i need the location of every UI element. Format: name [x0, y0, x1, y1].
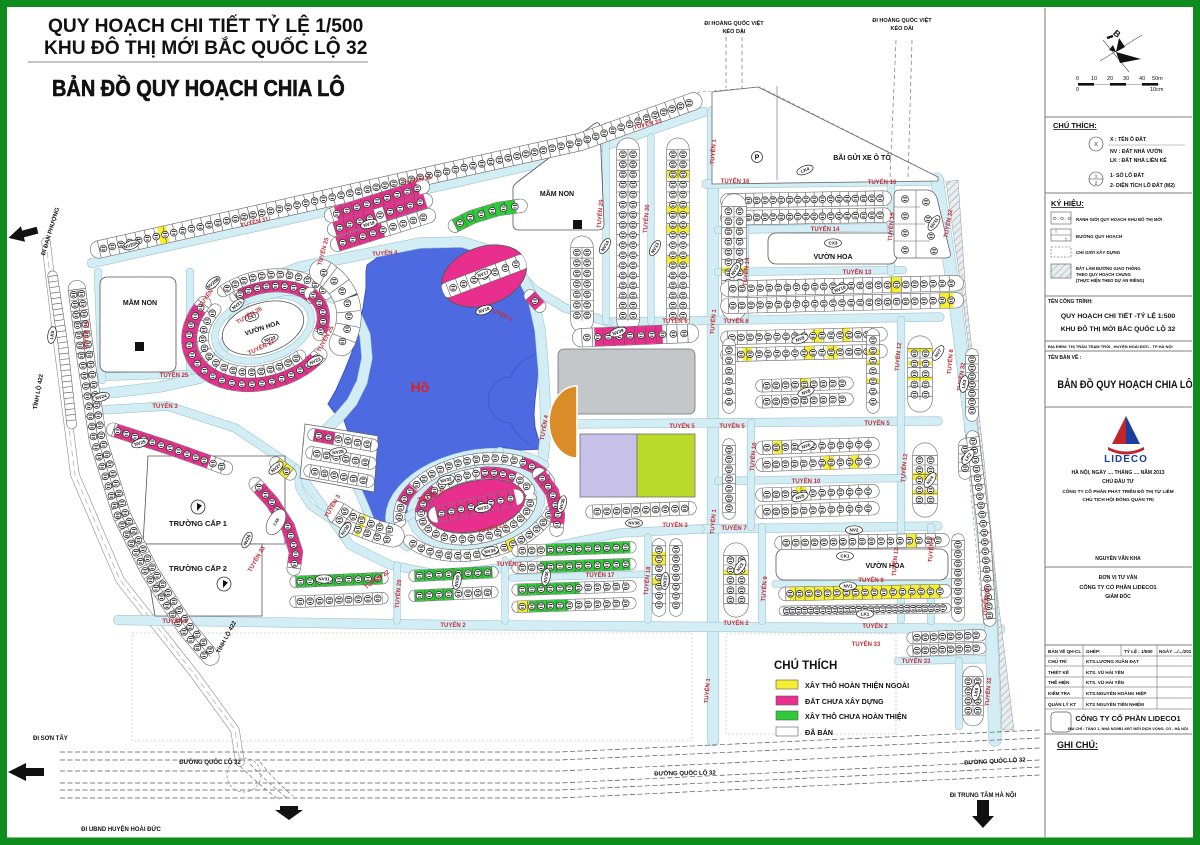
svg-text:TUYẾN 2: TUYẾN 2 — [862, 623, 888, 630]
svg-text:TUYẾN 3: TUYẾN 3 — [662, 522, 688, 529]
svg-text:CHỦ TỊCH HỘI ĐỒNG QUẢN TRỊ: CHỦ TỊCH HỘI ĐỒNG QUẢN TRỊ — [1082, 495, 1153, 502]
svg-text:CÔNG TY CỔ PHẦN LIDECO1: CÔNG TY CỔ PHẦN LIDECO1 — [1079, 583, 1156, 591]
svg-text:P: P — [755, 155, 760, 162]
svg-text:NGUYỄN VĂN KHA: NGUYỄN VĂN KHA — [1095, 555, 1141, 562]
svg-text:CHÚ THÍCH:: CHÚ THÍCH: — [1053, 121, 1097, 130]
svg-text:KÉO DÀI: KÉO DÀI — [891, 24, 914, 32]
svg-text:ĐẤT CHƯA XÂY DỰNG: ĐẤT CHƯA XÂY DỰNG — [805, 696, 884, 706]
svg-text:50m: 50m — [1152, 76, 1163, 82]
svg-text:QUẢN LÝ KT: QUẢN LÝ KT — [1048, 701, 1076, 707]
svg-text:TÊN CÔNG TRÌNH:: TÊN CÔNG TRÌNH: — [1048, 297, 1093, 305]
svg-text:30: 30 — [1123, 76, 1129, 82]
svg-text:CK1: CK1 — [840, 554, 850, 559]
svg-text:TUYẾN 2: TUYẾN 2 — [723, 620, 749, 627]
svg-text:TUYẾN 33: TUYẾN 33 — [852, 641, 881, 648]
svg-text:TUYẾN 5: TUYẾN 5 — [719, 423, 745, 430]
svg-text:20: 20 — [1107, 76, 1113, 82]
svg-text:BẢN ĐỒ QUY HOẠCH CHIA LÔ: BẢN ĐỒ QUY HOẠCH CHIA LÔ — [52, 74, 345, 101]
svg-text:GIÁM ĐỐC: GIÁM ĐỐC — [1105, 593, 1131, 600]
svg-text:Hồ: Hồ — [411, 379, 430, 395]
svg-text:(THỰC HIỆN THEO DỰ ÁN RIÊNG): (THỰC HIỆN THEO DỰ ÁN RIÊNG) — [1076, 278, 1145, 283]
svg-text:ĐI SƠN TÂY: ĐI SƠN TÂY — [33, 735, 68, 742]
svg-text:CHỦ TRÌ: CHỦ TRÌ — [1048, 657, 1067, 664]
svg-text:TUYẾN 10: TUYẾN 10 — [792, 478, 821, 485]
svg-text:ĐƯỜNG QUY HOẠCH: ĐƯỜNG QUY HOẠCH — [1076, 232, 1122, 239]
svg-text:THEO QUY HOẠCH CHUNG: THEO QUY HOẠCH CHUNG — [1076, 272, 1131, 277]
svg-text:ĐỊA ĐIỂM: THỊ TRẤN TRẠM TRÔI ,: ĐỊA ĐIỂM: THỊ TRẤN TRẠM TRÔI , HUYỆN HOÀ… — [1048, 344, 1173, 349]
svg-text:KTS. VŨ HẢI YẾN: KTS. VŨ HẢI YẾN — [1086, 679, 1125, 685]
svg-text:TUYẾN 16: TUYẾN 16 — [868, 179, 897, 186]
svg-text:RANH GIỚI QUY HOẠCH KHU ĐÔ THỊ: RANH GIỚI QUY HOẠCH KHU ĐÔ THỊ MỚI — [1076, 217, 1162, 222]
svg-text:ĐÃ BÁN: ĐÃ BÁN — [805, 728, 833, 737]
svg-text:TUYẾN 8: TUYẾN 8 — [858, 577, 884, 584]
svg-text:THỂ HIỆN: THỂ HIỆN — [1048, 678, 1070, 685]
svg-text:KÝ HIỆU:: KÝ HIỆU: — [1051, 199, 1084, 208]
svg-text:NV1: NV1 — [844, 584, 853, 589]
svg-text:NV2: NV2 — [850, 528, 859, 533]
svg-text:LK : ĐẤT NHÀ LIỀN KẾ: LK : ĐẤT NHÀ LIỀN KẾ — [1110, 157, 1167, 164]
svg-text:ĐỊA CHỈ : TẦNG 1, NHÀ NO9B1 KĐ: ĐỊA CHỈ : TẦNG 1, NHÀ NO9B1 KĐT MỚI DỊCH… — [1068, 726, 1188, 731]
svg-text:VƯỜN HOA: VƯỜN HOA — [813, 252, 852, 261]
svg-text:TUYẾN 3: TUYẾN 3 — [152, 403, 178, 410]
svg-text:TUYẾN 5: TUYẾN 5 — [669, 423, 695, 430]
svg-text:GHÉP:: GHÉP: — [1086, 647, 1101, 654]
svg-text:ĐƠN VỊ TƯ VẤN: ĐƠN VỊ TƯ VẤN — [1099, 574, 1138, 581]
svg-text:BÃI GỬI XE Ô TÔ: BÃI GỬI XE Ô TÔ — [833, 153, 891, 162]
svg-text:NV : ĐẤT NHÀ VƯỜN: NV : ĐẤT NHÀ VƯỜN — [1110, 147, 1163, 155]
svg-text:NV38: NV38 — [628, 521, 640, 526]
svg-text:TỶ LỆ : 1/500: TỶ LỆ : 1/500 — [1124, 647, 1153, 654]
svg-text:ĐƯỜNG QUỐC LỘ 32: ĐƯỜNG QUỐC LỘ 32 — [179, 758, 241, 766]
svg-text:THIẾT KẾ: THIẾT KẾ — [1048, 669, 1069, 675]
svg-text:TUYẾN 5: TUYẾN 5 — [864, 420, 890, 427]
svg-text:TUYẾN 33: TUYẾN 33 — [902, 658, 931, 665]
svg-text:CHỈ GIỚI XÂY DỰNG: CHỈ GIỚI XÂY DỰNG — [1076, 248, 1121, 255]
svg-text:NV37: NV37 — [662, 575, 668, 587]
svg-text:TÊN BẢN VẼ :: TÊN BẢN VẼ : — [1048, 353, 1082, 361]
svg-text:X : TÊN Ô ĐẤT: X : TÊN Ô ĐẤT — [1110, 135, 1147, 143]
svg-text:ĐI HOÀNG QUỐC VIỆT: ĐI HOÀNG QUỐC VIỆT — [872, 16, 932, 24]
svg-text:ĐI TRUNG TÂM HÀ NỘI: ĐI TRUNG TÂM HÀ NỘI — [950, 791, 1017, 799]
svg-text:GHI CHÚ:: GHI CHÚ: — [1057, 739, 1098, 750]
svg-text:CÔNG TY CỔ PHẦN LIDECO1: CÔNG TY CỔ PHẦN LIDECO1 — [1075, 713, 1180, 723]
svg-text:CÔNG TY CỔ PHẦN PHÁT TRIỂN ĐÔ: CÔNG TY CỔ PHẦN PHÁT TRIỂN ĐÔ THỊ TỪ LIÊ… — [1062, 487, 1173, 494]
svg-text:O . O . O: O . O . O — [1053, 216, 1072, 221]
svg-text:CHÚ THÍCH: CHÚ THÍCH — [774, 659, 837, 672]
svg-text:KTS.LƯƠNG XUÂN ĐẠT: KTS.LƯƠNG XUÂN ĐẠT — [1086, 658, 1139, 664]
svg-text:TUYẾN 25: TUYẾN 25 — [160, 372, 189, 379]
svg-text:1- SỐ LÔ ĐẤT: 1- SỐ LÔ ĐẤT — [1110, 171, 1145, 179]
svg-text:TUYẾN 3: TUYẾN 3 — [496, 561, 522, 568]
svg-text:TUYẾN 7: TUYẾN 7 — [721, 525, 747, 532]
svg-text:KÉO DÀI: KÉO DÀI — [723, 27, 746, 35]
svg-text:ĐẤT LÀM ĐƯỜNG GIAO THÔNG: ĐẤT LÀM ĐƯỜNG GIAO THÔNG — [1076, 266, 1141, 271]
svg-text:TUYẾN 6: TUYẾN 6 — [723, 318, 749, 325]
svg-text:HÀ NỘI, NGÀY .... THÁNG .... N: HÀ NỘI, NGÀY .... THÁNG .... NĂM 2013 — [1072, 468, 1165, 476]
svg-text:KIỂM TRA: KIỂM TRA — [1048, 690, 1071, 696]
svg-text:LIDECO: LIDECO — [1104, 454, 1148, 465]
svg-text:KTS NGUYỄN TIẾN NHIỆM: KTS NGUYỄN TIẾN NHIỆM — [1086, 700, 1144, 707]
svg-text:TUYẾN 2: TUYẾN 2 — [440, 622, 466, 629]
svg-text:BẢN VẼ QH-CL: BẢN VẼ QH-CL — [1048, 648, 1081, 654]
svg-text:TUYẾN 2: TUYẾN 2 — [162, 618, 188, 625]
svg-text:BẢN ĐỒ QUY HOẠCH CHIA LÔ: BẢN ĐỒ QUY HOẠCH CHIA LÔ — [1057, 377, 1192, 391]
svg-text:CHỦ ĐẦU TƯ: CHỦ ĐẦU TƯ — [1102, 478, 1134, 485]
svg-text:TRƯỜNG CẤP 2: TRƯỜNG CẤP 2 — [169, 563, 227, 573]
svg-text:0: 0 — [1076, 87, 1079, 93]
svg-text:TUYẾN 16: TUYẾN 16 — [721, 178, 750, 185]
svg-text:KTS. VŨ HẢI YẾN: KTS. VŨ HẢI YẾN — [1086, 669, 1125, 675]
svg-text:10: 10 — [1091, 76, 1097, 82]
svg-text:10cm: 10cm — [1150, 87, 1164, 93]
svg-text:TUYẾN 13: TUYẾN 13 — [843, 269, 872, 276]
svg-text:ĐI HOÀNG QUỐC VIỆT: ĐI HOÀNG QUỐC VIỆT — [704, 19, 764, 27]
svg-text:0: 0 — [1076, 76, 1079, 82]
svg-text:QUY HOẠCH CHI TIẾT TỶ LỆ 1/500: QUY HOẠCH CHI TIẾT TỶ LỆ 1/500 — [48, 15, 363, 37]
svg-text:TUYẾN 14: TUYẾN 14 — [811, 226, 840, 233]
svg-text:2- DIỆN TÍCH LÔ ĐẤT (M2): 2- DIỆN TÍCH LÔ ĐẤT (M2) — [1110, 181, 1175, 189]
svg-text:XÂY THÔ HOÀN THIỆN NGOÀI: XÂY THÔ HOÀN THIỆN NGOÀI — [805, 681, 909, 690]
svg-text:LK1: LK1 — [861, 612, 870, 617]
svg-text:TRƯỜNG CẤP 1: TRƯỜNG CẤP 1 — [169, 518, 227, 528]
svg-text:ĐI UBND HUYỆN HOÀI ĐỨC: ĐI UBND HUYỆN HOÀI ĐỨC — [81, 825, 161, 833]
svg-text:NGÀY .../.../201: NGÀY .../.../201 — [1159, 648, 1192, 654]
svg-text:40: 40 — [1139, 76, 1145, 82]
svg-text:KHU ĐÔ THỊ MỚI BẮC QUỐC LỘ 32: KHU ĐÔ THỊ MỚI BẮC QUỐC LỘ 32 — [44, 37, 367, 59]
svg-text:CX3: CX3 — [829, 241, 838, 246]
svg-text:XÂY THÔ CHƯA HOÀN THIỆN: XÂY THÔ CHƯA HOÀN THIỆN — [805, 712, 907, 721]
svg-text:NV31: NV31 — [318, 577, 330, 582]
svg-text:TUYẾN 6: TUYẾN 6 — [662, 318, 688, 325]
svg-text:TUYẾN 17: TUYẾN 17 — [586, 572, 615, 579]
svg-text:KTS.NGUYỄN HOÀNG HIỆP: KTS.NGUYỄN HOÀNG HIỆP — [1086, 689, 1147, 696]
